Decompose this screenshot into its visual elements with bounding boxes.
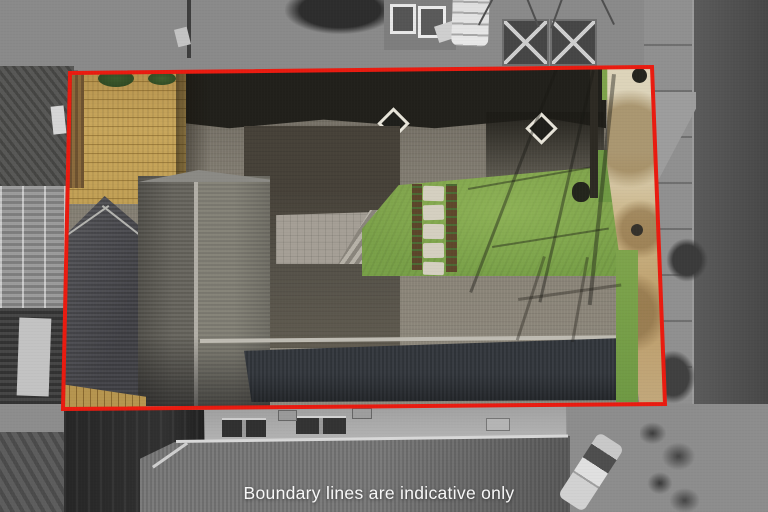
neighbour-left-wall — [17, 317, 52, 396]
utility-pole — [187, 0, 191, 58]
facade-window — [222, 418, 266, 437]
stepping-stone — [423, 186, 444, 202]
grass-strip-east — [616, 250, 638, 402]
roof-vent — [352, 408, 372, 419]
roof-vent — [486, 418, 510, 431]
pylon-gate-panel — [550, 19, 597, 66]
pylon-gate-panel — [502, 19, 549, 66]
potted-shrub — [631, 224, 643, 236]
stepping-stone — [423, 224, 444, 239]
facade-window — [296, 416, 346, 434]
stepping-stone — [423, 243, 444, 258]
skylight-window — [390, 4, 416, 34]
neighbour-glasshouse-roof — [0, 186, 66, 310]
stepping-stone — [423, 205, 444, 221]
boundary-caption: Boundary lines are indicative only — [244, 483, 515, 504]
parked-van — [451, 0, 490, 47]
garden-bush — [148, 72, 176, 85]
garden-bed — [446, 184, 457, 272]
corner-shrubs — [640, 416, 702, 512]
potted-shrub — [632, 68, 647, 83]
street-shrub — [666, 238, 708, 282]
garden-bed — [412, 184, 422, 270]
sign-board — [51, 105, 67, 134]
bottom-left-vegetation — [0, 432, 70, 512]
tree-canopy — [285, 0, 395, 34]
roof-vent — [278, 410, 297, 421]
aerial-photo: Boundary lines are indicative only — [0, 0, 768, 512]
lawn-shrub — [572, 182, 590, 202]
